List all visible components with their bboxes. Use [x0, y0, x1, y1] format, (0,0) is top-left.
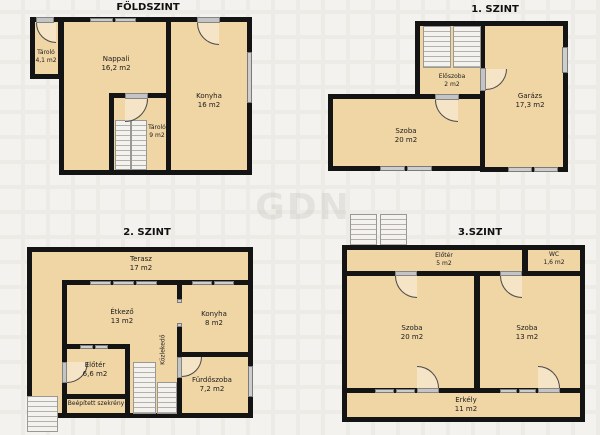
window	[95, 345, 108, 349]
window	[80, 345, 93, 349]
floor-title-szint3: 3.SZINT	[430, 227, 530, 238]
window	[534, 167, 558, 172]
window	[136, 281, 157, 285]
window	[115, 18, 136, 22]
stairs	[115, 120, 131, 170]
stairs	[453, 26, 481, 68]
room-label-szoba13: Szoba 13 m2	[487, 324, 567, 342]
window	[375, 389, 394, 393]
window	[508, 167, 532, 172]
window	[562, 47, 568, 73]
window	[90, 18, 113, 22]
room-label-etkezo: Étkező 13 m2	[82, 308, 162, 326]
wall	[347, 271, 395, 276]
stairs	[133, 362, 156, 414]
room-label-eloter2: Előtér 6,6 m2	[55, 361, 135, 379]
wall	[62, 394, 130, 399]
window	[519, 389, 536, 393]
room-label-szoba1: Szoba 20 m2	[366, 127, 446, 145]
doorway-jamb	[177, 299, 182, 303]
room-label-furdoszoba: Fürdőszoba 7,2 m2	[172, 376, 252, 394]
room-label-konyha-fsz: Konyha 16 m2	[169, 92, 249, 110]
watermark-text: GDN	[255, 187, 351, 228]
wall	[109, 93, 114, 175]
stairs	[423, 26, 451, 68]
window	[396, 389, 415, 393]
window	[214, 281, 234, 285]
room-label-tarolo-kicsi: Tároló 4,1 m2	[26, 49, 66, 64]
window	[500, 389, 517, 393]
floor-title-szint1: 1. SZINT	[445, 4, 545, 15]
window	[90, 281, 111, 285]
watermark-logo: GDN	[248, 172, 358, 242]
room-label-szoba20: Szoba 20 m2	[372, 324, 452, 342]
floor-title-szint2: 2. SZINT	[97, 227, 197, 238]
room-label-eloszoba: Előszoba 2 m2	[412, 73, 492, 88]
room-label-tarolo9: Tároló 9 m2	[142, 124, 172, 139]
room-label-terasz: Terasz 17 m2	[101, 255, 181, 273]
window	[407, 166, 432, 171]
room-label-erkely: Erkély 11 m2	[426, 396, 506, 414]
stairs	[27, 396, 58, 432]
wall	[522, 271, 585, 276]
room-label-szekreny: Beépített szekrény	[56, 400, 136, 408]
room-label-garazs: Garázs 17,3 m2	[490, 92, 570, 110]
wall	[560, 388, 585, 393]
floorplan-canvas: GDN FÖLDSZINT Tároló 4,1 m2 Nappali 16,2…	[0, 0, 600, 435]
window	[192, 281, 212, 285]
room-label-kozlekedo: Közlekedő	[159, 320, 167, 380]
room-label-nappali: Nappali 16,2 m2	[76, 55, 156, 73]
wall	[417, 271, 500, 276]
wall	[474, 276, 480, 393]
room-label-konyha2: Konyha 8 m2	[174, 310, 254, 328]
door-leaf	[417, 388, 439, 393]
window	[113, 281, 134, 285]
floor-title-foldszint: FÖLDSZINT	[98, 2, 198, 13]
room-label-wc: WC 1,6 m2	[514, 251, 594, 266]
window	[380, 166, 405, 171]
room-label-eloter3: Előtér 5 m2	[404, 252, 484, 267]
door-leaf	[538, 388, 560, 393]
